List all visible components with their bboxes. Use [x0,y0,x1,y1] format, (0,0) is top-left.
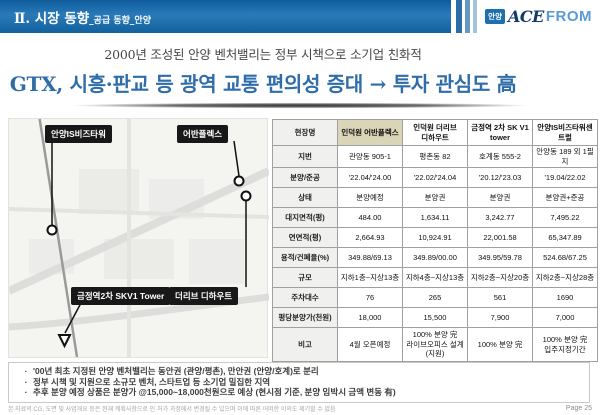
map-graphics [9,119,269,357]
row-label: 비고 [273,328,338,362]
logo-text-from: FROM [546,8,592,25]
footer-disclaimer: 본 자료의 CG, 도면 및 사업개요 등은 현재 계획사항으로 인·허가 과정… [8,404,336,413]
table-cell: 분양권 [468,188,533,208]
note-text: 추후 분양 예정 상품은 분양가 @15,000~18,000천원으로 예상 (… [33,387,396,398]
row-label: 연면적(평) [273,228,338,248]
note-text: 정부 시책 및 지원으로 소규모 벤처, 스타트업 등 소기업 밀집한 지역 [33,377,270,388]
table-cell: 1,634.11 [403,208,468,228]
table-cell: 65,347.89 [533,228,598,248]
table-row: 현장명인덕원 어반플렉스인덕원 더리브 디하우트금정역 2차 SK V1 tow… [273,120,598,146]
column-header-cell: 인덕원 어반플렉스 [338,120,403,146]
map-label-geumjeong-skv1: 금정역2차 SKV1 Tower [71,287,170,305]
table-cell: '22.04/'24.00 [338,168,403,188]
logo-text-ace: ACE [508,7,544,26]
footer: 본 자료의 CG, 도면 및 사업개요 등은 현재 계획사항으로 인·허가 과정… [8,404,592,413]
note-item: ·추후 분양 예정 상품은 분양가 @15,000~18,000천원으로 예상 … [19,387,579,398]
row-label: 현장명 [273,120,338,146]
presentation-slide: Ⅱ. 시장 동향_공급 동향_안양 안양 ACE FROM 2000년 조성된 … [0,0,600,415]
header-stripe [465,0,470,33]
table-cell: 100% 분양 完 라이브오피스 설계(지원) [403,328,468,362]
table-cell: 1690 [533,288,598,308]
column-header-cell: 금정역 2차 SK V1 tower [468,120,533,146]
header-stripe [456,0,462,33]
table-cell: 지하2층~지상28층 [533,268,598,288]
comparison-table-wrap: 현장명인덕원 어반플렉스인덕원 더리브 디하우트금정역 2차 SK V1 tow… [272,119,598,362]
table-row: 규모지하1층~지상13층지하4층~지상13층지하2층~지상20층지하2층~지상2… [273,268,598,288]
page-title: Ⅱ. 시장 동향_공급 동향_안양 [0,7,151,27]
table-cell: 349.89/00.00 [403,248,468,268]
location-map: 안양IS비즈타워 어반플렉스 금정역2차 SKV1 Tower 더리브 디하우트 [8,118,268,358]
bullet-icon: · [19,387,33,398]
row-label: 규모 [273,268,338,288]
table-cell: 호계동 555-2 [468,146,533,168]
table-row: 용적/건폐율(%)349.88/69.13349.89/00.00349.95/… [273,248,598,268]
headline-subtitle: 2000년 조성된 안양 벤처밸리는 정부 시책으로 소기업 친화적 [0,44,526,63]
table-cell: 484.00 [338,208,403,228]
table-cell: '22.02/'24.04 [403,168,468,188]
page-title-main: Ⅱ. 시장 동향 [14,11,89,27]
table-cell: '19.04/22.02 [533,168,598,188]
table-cell: 평촌동 82 [403,146,468,168]
gradient-divider [14,102,586,109]
row-label: 평당분양가(천원) [273,308,338,328]
table-cell: 7,000 [533,308,598,328]
table-cell: 분양권 [403,188,468,208]
comparison-table-body: 현장명인덕원 어반플렉스인덕원 더리브 디하우트금정역 2차 SK V1 tow… [273,120,598,362]
table-row: 평당분양가(천원)18,00015,5007,9007,000 [273,308,598,328]
table-cell: 지하2층~지상20층 [468,268,533,288]
table-cell: 지하1층~지상13층 [338,268,403,288]
table-cell: 지하4층~지상13층 [403,268,468,288]
table-cell: 7,900 [468,308,533,328]
table-cell: 분양예정 [338,188,403,208]
table-cell: 15,500 [403,308,468,328]
table-cell: 76 [338,288,403,308]
table-row: 지번관양동 905-1평촌동 82호계동 555-2안양동 189 외 1필지 [273,146,598,168]
table-cell: 349.95/59.78 [468,248,533,268]
notes-box: ·'00년 최초 지정된 안양 벤처밸리는 동안권 (관양/평촌), 만안권 (… [8,362,590,403]
table-cell: 265 [403,288,468,308]
row-label: 지번 [273,146,338,168]
table-row: 비고4월 오픈예정100% 분양 完 라이브오피스 설계(지원)100% 분양 … [273,328,598,362]
table-row: 대지면적(평)484.001,634.113,242.777,495.22 [273,208,598,228]
table-cell: 4월 오픈예정 [338,328,403,362]
map-label-urbanflex: 어반플렉스 [177,125,228,143]
headline: 2000년 조성된 안양 벤처밸리는 정부 시책으로 소기업 친화적 GTX, … [0,44,526,97]
table-row: 연면적(평)2,664.9310,924.9122,001.5865,347.8… [273,228,598,248]
table-cell: 100% 분양 完 입주지정기간 [533,328,598,362]
note-item: ·'00년 최초 지정된 안양 벤처밸리는 동안권 (관양/평촌), 만안권 (… [19,366,579,377]
table-cell: 18,000 [338,308,403,328]
headline-title: GTX, 시흥·판교 등 광역 교통 편의성 증대 → 투자 관심도 高 [0,68,526,97]
row-label: 주차대수 [273,288,338,308]
row-label: 대지면적(평) [273,208,338,228]
comparison-table: 현장명인덕원 어반플렉스인덕원 더리브 디하우트금정역 2차 SK V1 tow… [272,119,598,362]
header-logo-zone: 안양 ACE FROM [451,0,600,33]
note-text: '00년 최초 지정된 안양 벤처밸리는 동안권 (관양/평촌), 만안권 (안… [33,366,319,377]
table-row: 주차대수762655611690 [273,288,598,308]
page-number: Page 25 [566,405,592,412]
bullet-icon: · [19,377,33,388]
column-header-cell: 인덕원 더리브 디하우트 [403,120,468,146]
table-cell: 2,664.93 [338,228,403,248]
header-stripe [473,0,477,33]
table-cell: 561 [468,288,533,308]
note-item: ·정부 시책 및 지원으로 소규모 벤처, 스타트업 등 소기업 밀집한 지역 [19,377,579,388]
table-cell: 22,001.58 [468,228,533,248]
column-header-cell: 안양IS비즈타워센트럴 [533,120,598,146]
table-cell: 349.88/69.13 [338,248,403,268]
table-cell: 100% 분양 完 [468,328,533,362]
table-cell: 7,495.22 [533,208,598,228]
table-row: 분양/준공'22.04/'24.00'22.02/'24.04'20.12/'2… [273,168,598,188]
table-cell: 분양권+준공 [533,188,598,208]
table-cell: 관양동 905-1 [338,146,403,168]
table-cell: 안양동 189 외 1필지 [533,146,598,168]
map-label-thelive-dehaute: 더리브 디하우트 [169,287,238,305]
table-cell: '20.12/'23.03 [468,168,533,188]
brand-logo: 안양 ACE FROM [485,7,592,26]
row-label: 분양/준공 [273,168,338,188]
header-bar: Ⅱ. 시장 동향_공급 동향_안양 안양 ACE FROM [0,0,600,33]
logo-badge: 안양 [485,9,505,24]
row-label: 상태 [273,188,338,208]
bullet-icon: · [19,366,33,377]
page-title-sub: _공급 동향_안양 [89,16,151,26]
table-cell: 10,924.91 [403,228,468,248]
map-label-anyang-is-biztower: 안양IS비즈타워 [45,125,112,143]
row-label: 용적/건폐율(%) [273,248,338,268]
table-cell: 524.68/67.25 [533,248,598,268]
table-row: 상태분양예정분양권분양권분양권+준공 [273,188,598,208]
table-cell: 3,242.77 [468,208,533,228]
